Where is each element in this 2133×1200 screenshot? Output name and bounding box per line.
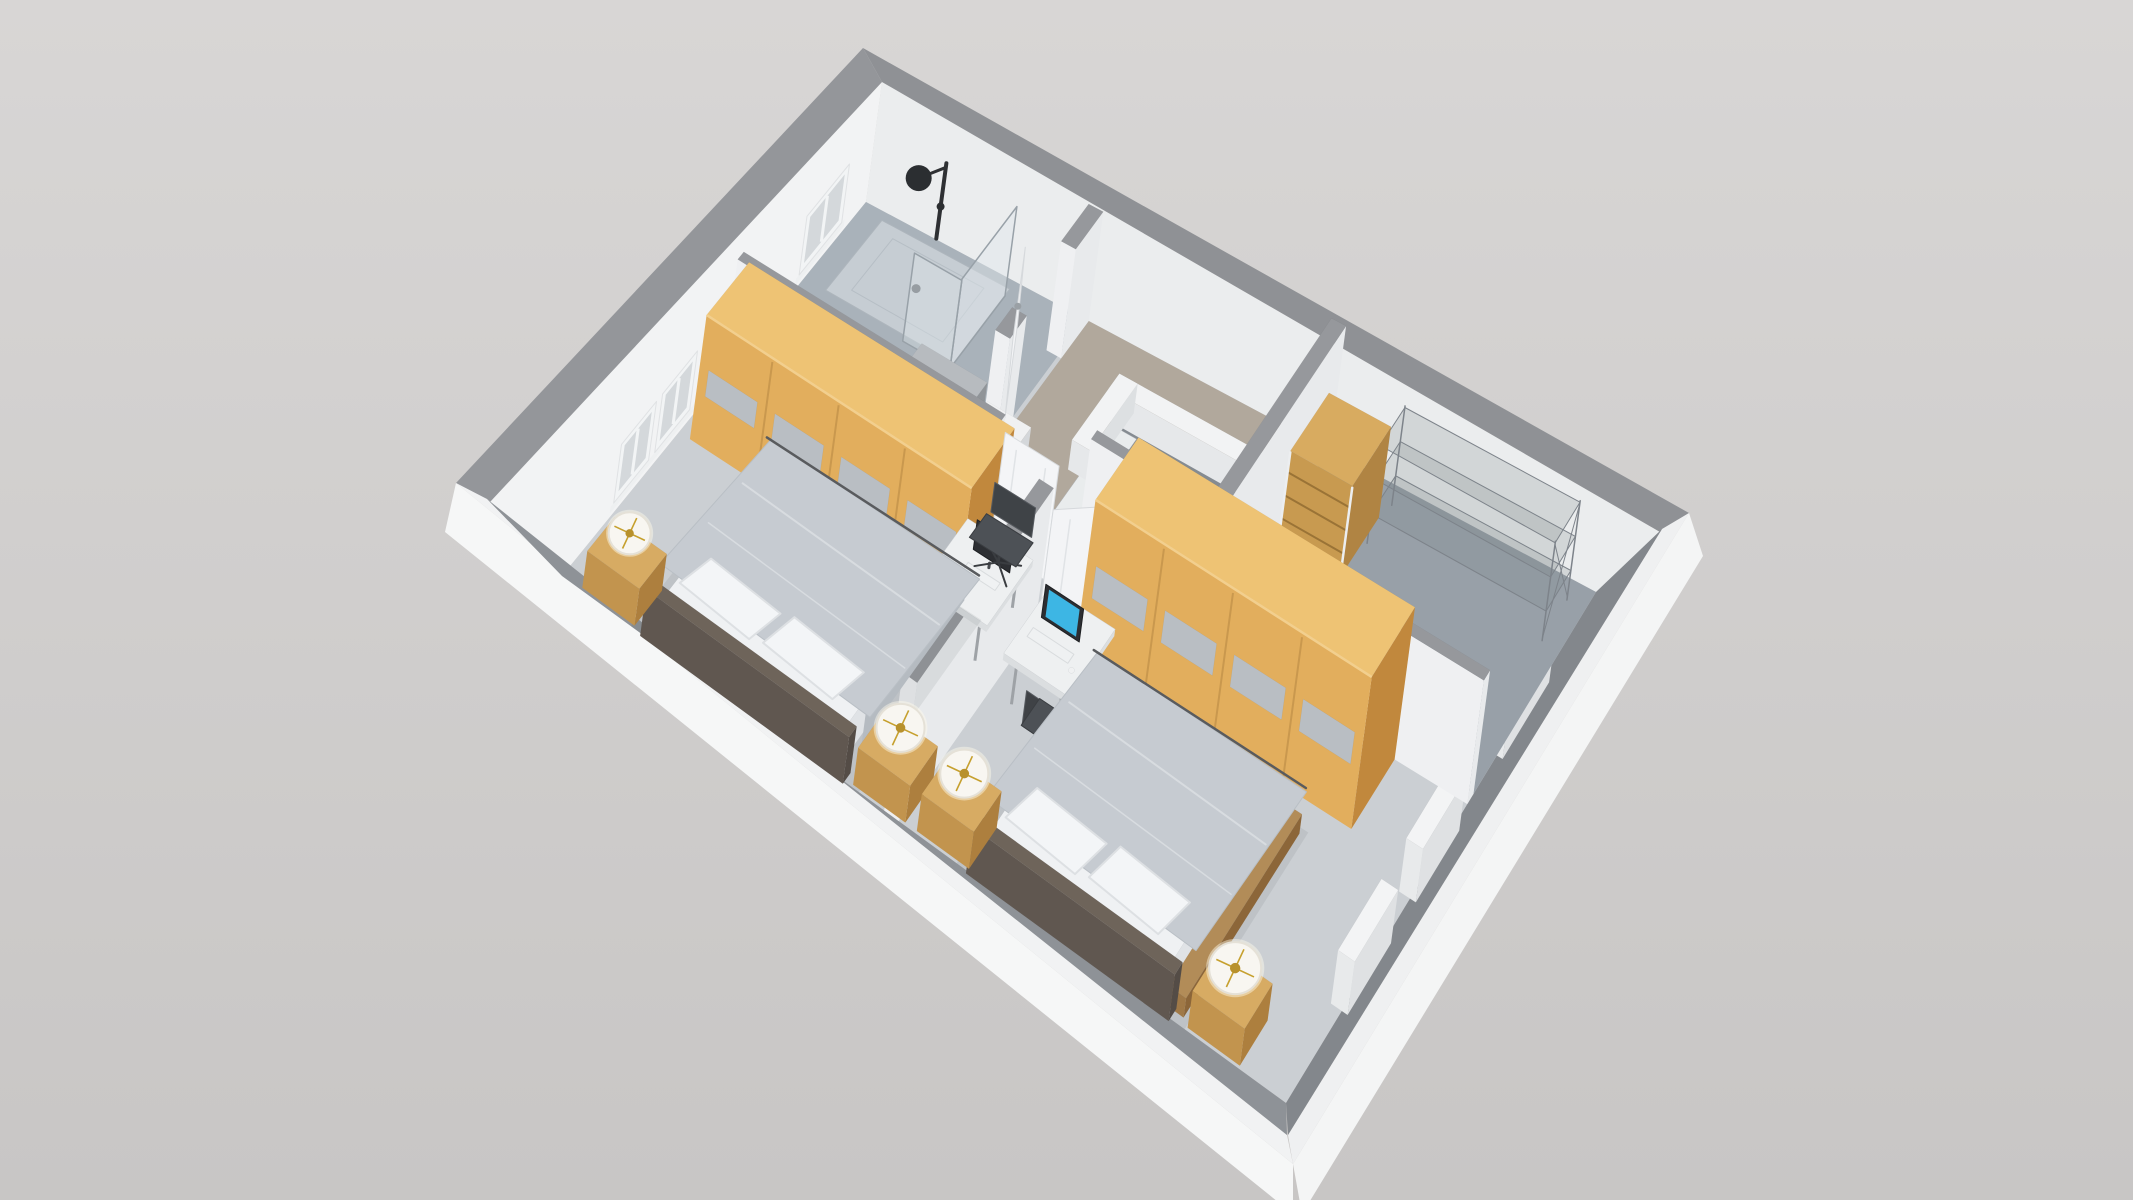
bedroom2-mouse [1068, 667, 1074, 673]
floorplan-3d-render [0, 0, 2133, 1200]
floorplan-render-stage [0, 0, 2133, 1200]
bedroom1-lamp-2-filament-hub [896, 723, 906, 733]
bedroom2-lamp-1-filament-hub [959, 769, 969, 779]
bedroom2-lamp-2-filament-hub [1230, 963, 1240, 973]
bathroom-door-handle [1014, 303, 1021, 310]
shower-head [906, 165, 932, 191]
shower-valve [937, 203, 945, 211]
bedroom1-lamp-1-filament-hub [625, 529, 633, 537]
